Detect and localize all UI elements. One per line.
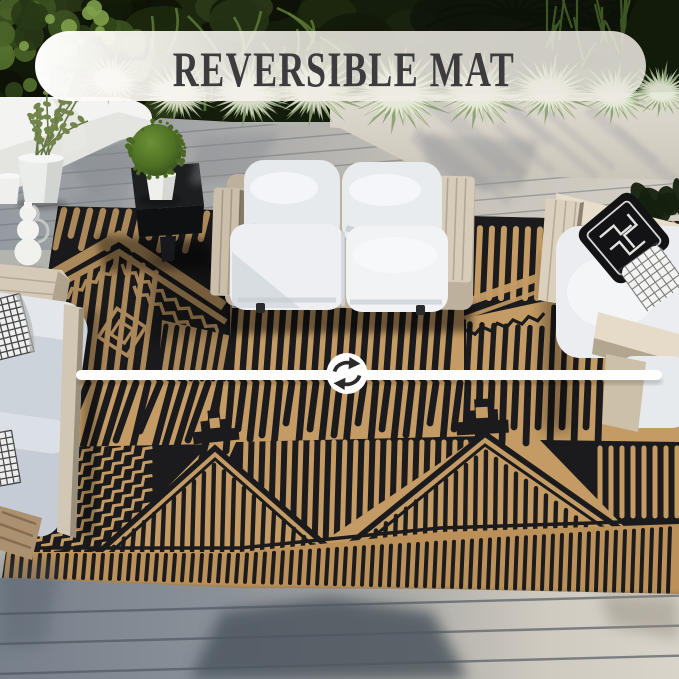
svg-text:REVERSIBLE MAT: REVERSIBLE MAT: [173, 42, 515, 97]
